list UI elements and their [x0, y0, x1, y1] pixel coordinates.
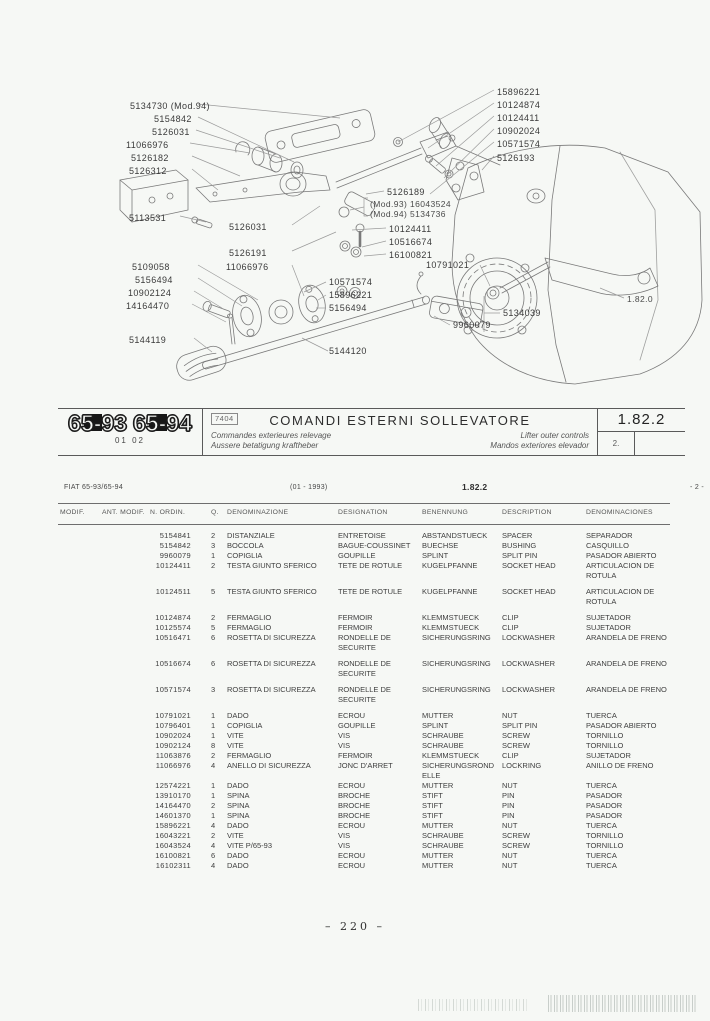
part-label: 15896221 — [329, 290, 372, 300]
cell-designation: ECROU — [338, 711, 422, 721]
cell-ant-modif — [102, 781, 150, 791]
cell-quantity: 1 — [205, 791, 227, 801]
cell-part-number: 10124411 — [150, 561, 205, 581]
cell-quantity: 2 — [205, 613, 227, 623]
cell-denominazione: VITE — [227, 731, 338, 741]
part-label: (Mod.94) 5134736 — [370, 209, 446, 219]
cell-quantity: 6 — [205, 659, 227, 679]
part-label: 16100821 — [389, 250, 432, 260]
sheet-number: 2. — [598, 432, 635, 455]
cell-denominaciones: PASADOR ABIERTO — [586, 551, 668, 561]
cell-benennung: KUGELPFANNE — [422, 561, 502, 581]
cell-part-number: 10125574 — [150, 623, 205, 633]
page-number: – 220 – — [0, 920, 710, 933]
cell-benennung: SCHRAUBE — [422, 831, 502, 841]
cell-ant-modif — [102, 711, 150, 721]
cell-quantity: 4 — [205, 761, 227, 781]
cell-quantity: 4 — [205, 861, 227, 871]
col-header-ant-modif: ANT. MODIF. — [102, 509, 150, 516]
part-label: 10124874 — [497, 100, 540, 110]
cell-designation: RONDELLE DE SECURITE — [338, 685, 422, 705]
cell-benennung: STIFT — [422, 791, 502, 801]
cell-ant-modif — [102, 851, 150, 861]
cell-designation: RONDELLE DE SECURITE — [338, 633, 422, 653]
cell-denominazione: DISTANZIALE — [227, 531, 338, 541]
cell-part-number: 10796401 — [150, 721, 205, 731]
date-range: (01 - 1993) — [290, 484, 328, 491]
cell-quantity: 2 — [205, 561, 227, 581]
col-header-designation: DESIGNATION — [338, 509, 422, 516]
cell-denominazione: VITE — [227, 741, 338, 751]
cell-part-number: 10124874 — [150, 613, 205, 623]
part-label: 5113531 — [129, 213, 166, 223]
section-code-repeat: 1.82.2 — [462, 482, 487, 492]
model-line: FIAT 65-93/65-94 — [64, 484, 123, 491]
part-label: 5109058 — [132, 262, 170, 272]
cell-description: LOCKWASHER — [502, 633, 586, 653]
cell-denominaciones: TUERCA — [586, 851, 668, 861]
cell-description: PIN — [502, 801, 586, 811]
part-label: 5126189 — [387, 187, 425, 197]
cell-denominaciones: PASADOR ABIERTO — [586, 721, 668, 731]
cell-modif — [60, 587, 102, 607]
cell-benennung: SCHRAUBE — [422, 731, 502, 741]
cell-quantity: 2 — [205, 831, 227, 841]
cell-designation: JONC D'ARRET — [338, 761, 422, 781]
cell-denominaciones: TORNILLO — [586, 841, 668, 851]
cell-description: SCREW — [502, 831, 586, 841]
cell-modif — [60, 633, 102, 653]
title-cell: 7404 COMANDI ESTERNI SOLLEVATORE Command… — [202, 409, 597, 455]
cell-part-number: 16043221 — [150, 831, 205, 841]
cell-description: SOCKET HEAD — [502, 561, 586, 581]
part-label: 10124411 — [389, 224, 432, 234]
cell-ant-modif — [102, 623, 150, 633]
cell-designation: ENTRETOISE — [338, 531, 422, 541]
cell-benennung: SICHERUNGSRING — [422, 633, 502, 653]
cell-designation: VIS — [338, 841, 422, 851]
table-row: 12574221 1 DADO ECROU MUTTER NUT TUERCA — [60, 781, 672, 791]
cell-part-number: 16102311 — [150, 861, 205, 871]
cell-modif — [60, 821, 102, 831]
cell-part-number: 16100821 — [150, 851, 205, 861]
cell-benennung: SICHERUNGSRING — [422, 685, 502, 705]
cell-denominaciones: TUERCA — [586, 781, 668, 791]
divider — [58, 503, 670, 504]
cell-quantity: 2 — [205, 751, 227, 761]
cell-description: BUSHING — [502, 541, 586, 551]
table-row: 10571574 3 ROSETTA DI SICUREZZA RONDELLE… — [60, 685, 672, 705]
page-ref: - 2 - — [690, 484, 704, 491]
cell-denominaciones: SUJETADOR — [586, 751, 668, 761]
table-row: 10791021 1 DADO ECROU MUTTER NUT TUERCA — [60, 711, 672, 721]
cell-description: CLIP — [502, 613, 586, 623]
cell-description: SOCKET HEAD — [502, 587, 586, 607]
cell-ant-modif — [102, 811, 150, 821]
code-box: 7404 — [211, 413, 238, 425]
cell-part-number: 10791021 — [150, 711, 205, 721]
cell-benennung: STIFT — [422, 801, 502, 811]
cell-denominaciones: TUERCA — [586, 861, 668, 871]
cell-benennung: SPLINT — [422, 551, 502, 561]
cell-ant-modif — [102, 841, 150, 851]
cell-denominazione: VITE — [227, 831, 338, 841]
part-label: 10571574 — [329, 277, 372, 287]
cell-denominaciones: ARTICULACION DE ROTULA — [586, 561, 668, 581]
cell-part-number: 5154841 — [150, 531, 205, 541]
cell-description: SPLIT PIN — [502, 721, 586, 731]
cell-part-number: 11066976 — [150, 761, 205, 781]
section-code: 1.82.2 — [598, 409, 685, 432]
table-row: 11066976 4 ANELLO DI SICUREZZA JONC D'AR… — [60, 761, 672, 781]
cell-modif — [60, 551, 102, 561]
cell-modif — [60, 561, 102, 581]
cell-denominazione: COPIGLIA — [227, 551, 338, 561]
table-row: 10796401 1 COPIGLIA GOUPILLE SPLINT SPLI… — [60, 721, 672, 731]
cell-designation: GOUPILLE — [338, 551, 422, 561]
cell-ant-modif — [102, 541, 150, 551]
cell-ant-modif — [102, 721, 150, 731]
col-header-denominazione: DENOMINAZIONE — [227, 509, 338, 516]
cell-designation: ECROU — [338, 851, 422, 861]
part-label: 5156494 — [135, 275, 173, 285]
cell-modif — [60, 659, 102, 679]
part-label: 10571574 — [497, 139, 540, 149]
cell-quantity: 6 — [205, 633, 227, 653]
cell-benennung: SCHRAUBE — [422, 841, 502, 851]
cell-part-number: 10124511 — [150, 587, 205, 607]
cell-designation: TETE DE ROTULE — [338, 587, 422, 607]
cell-quantity: 1 — [205, 781, 227, 791]
cell-denominazione: SPINA — [227, 801, 338, 811]
table-row: 11063876 2 FERMAGLIO FERMOIR KLEMMSTUECK… — [60, 751, 672, 761]
col-header-n-ordin: N. ORDIN. — [150, 509, 205, 516]
cell-modif — [60, 541, 102, 551]
table-header-row: MODIF. ANT. MODIF. N. ORDIN. Q. DENOMINA… — [60, 509, 668, 516]
cell-modif — [60, 721, 102, 731]
table-row: 10125574 5 FERMAGLIO FERMOIR KLEMMSTUECK… — [60, 623, 672, 633]
cell-description: NUT — [502, 861, 586, 871]
cell-description: SPLIT PIN — [502, 551, 586, 561]
cell-ant-modif — [102, 791, 150, 801]
cell-part-number: 10516471 — [150, 633, 205, 653]
part-label: 11066976 — [126, 140, 169, 150]
cell-benennung: ABSTANDSTUECK — [422, 531, 502, 541]
page-title: COMANDI ESTERNI SOLLEVATORE — [211, 413, 589, 428]
cell-denominaciones: TUERCA — [586, 821, 668, 831]
part-label: 5126031 — [152, 127, 190, 137]
cell-benennung: SICHERUNGSRONDELLE — [422, 761, 502, 781]
cell-denominaciones: TUERCA — [586, 711, 668, 721]
cell-denominaciones: ANILLO DE FRENO — [586, 761, 668, 781]
cell-benennung: KLEMMSTUECK — [422, 613, 502, 623]
cell-denominaciones: ARANDELA DE FRENO — [586, 633, 668, 653]
cell-part-number: 11063876 — [150, 751, 205, 761]
exploded-diagram: 5134730 (Mod.94) 5154842 5126031 1106697… — [0, 0, 710, 405]
part-label: 9960079 — [453, 320, 491, 330]
cell-designation: VIS — [338, 731, 422, 741]
cell-denominaciones: PASADOR — [586, 801, 668, 811]
cell-denominaciones: ARANDELA DE FRENO — [586, 659, 668, 679]
cell-denominazione: SPINA — [227, 811, 338, 821]
cell-description: CLIP — [502, 623, 586, 633]
part-label: 5144120 — [329, 346, 367, 356]
col-header-denominaciones: DENOMINACIONES — [586, 509, 668, 516]
cell-designation: BROCHE — [338, 811, 422, 821]
title-band: 65-93 65-94 01 02 7404 COMANDI ESTERNI S… — [58, 408, 685, 456]
table-row: 16043221 2 VITE VIS SCHRAUBE SCREW TORNI… — [60, 831, 672, 841]
cell-benennung: STIFT — [422, 811, 502, 821]
cell-denominaciones: TORNILLO — [586, 731, 668, 741]
exploded-diagram-art — [0, 0, 710, 405]
part-label: 10791021 — [426, 260, 469, 270]
cell-designation: ECROU — [338, 821, 422, 831]
catalog-page: 5134730 (Mod.94) 5154842 5126031 1106697… — [0, 0, 710, 1021]
cell-quantity: 8 — [205, 741, 227, 751]
cell-description: SCREW — [502, 841, 586, 851]
cell-benennung: MUTTER — [422, 861, 502, 871]
cell-ant-modif — [102, 551, 150, 561]
scan-artifact — [548, 995, 698, 1012]
table-row: 16102311 4 DADO ECROU MUTTER NUT TUERCA — [60, 861, 672, 871]
cell-modif — [60, 685, 102, 705]
part-label: 10516674 — [389, 237, 432, 247]
cell-modif — [60, 791, 102, 801]
cell-description: SCREW — [502, 731, 586, 741]
cell-denominazione: COPIGLIA — [227, 721, 338, 731]
parts-table-body: 5154841 2 DISTANZIALE ENTRETOISE ABSTAND… — [60, 531, 672, 871]
cell-description: LOCKRING — [502, 761, 586, 781]
cell-part-number: 14601370 — [150, 811, 205, 821]
table-row: 16100821 6 DADO ECROU MUTTER NUT TUERCA — [60, 851, 672, 861]
cell-denominazione: DADO — [227, 821, 338, 831]
cell-description: LOCKWASHER — [502, 659, 586, 679]
cell-modif — [60, 711, 102, 721]
cell-denominazione: FERMAGLIO — [227, 623, 338, 633]
table-row: 10124511 5 TESTA GIUNTO SFERICO TETE DE … — [60, 587, 672, 607]
cell-quantity: 2 — [205, 801, 227, 811]
part-label: 5126312 — [129, 166, 167, 176]
cell-ant-modif — [102, 587, 150, 607]
cell-part-number: 13910170 — [150, 791, 205, 801]
cell-denominaciones: PASADOR — [586, 791, 668, 801]
cell-benennung: BUECHSE — [422, 541, 502, 551]
cell-ant-modif — [102, 861, 150, 871]
cell-ant-modif — [102, 731, 150, 741]
cell-ant-modif — [102, 613, 150, 623]
cell-designation: TETE DE ROTULE — [338, 561, 422, 581]
divider — [58, 524, 670, 525]
cell-designation: FERMOIR — [338, 613, 422, 623]
cell-quantity: 4 — [205, 821, 227, 831]
subtitle-en-es: Lifter outer controls Mandos exteriores … — [490, 431, 589, 450]
cell-modif — [60, 861, 102, 871]
part-label: 5126193 — [497, 153, 535, 163]
model-badge-65-93: 65-93 — [68, 411, 127, 436]
cell-quantity: 1 — [205, 721, 227, 731]
cell-benennung: SICHERUNGSRING — [422, 659, 502, 679]
cell-benennung: MUTTER — [422, 821, 502, 831]
cell-denominazione: FERMAGLIO — [227, 613, 338, 623]
cell-ant-modif — [102, 561, 150, 581]
cell-quantity: 3 — [205, 685, 227, 705]
cell-modif — [60, 801, 102, 811]
cell-modif — [60, 731, 102, 741]
cell-part-number: 9960079 — [150, 551, 205, 561]
cell-designation: BROCHE — [338, 791, 422, 801]
cell-modif — [60, 811, 102, 821]
cell-description: NUT — [502, 851, 586, 861]
cell-ant-modif — [102, 741, 150, 751]
cell-denominazione: SPINA — [227, 791, 338, 801]
cell-description: LOCKWASHER — [502, 685, 586, 705]
cell-designation: ECROU — [338, 781, 422, 791]
cell-quantity: 2 — [205, 531, 227, 541]
part-label: 5154842 — [154, 114, 192, 124]
cell-denominaciones: CASQUILLO — [586, 541, 668, 551]
cell-description: NUT — [502, 821, 586, 831]
part-label: 10124411 — [497, 113, 540, 123]
cell-part-number: 16043524 — [150, 841, 205, 851]
cell-quantity: 3 — [205, 541, 227, 551]
cell-benennung: SPLINT — [422, 721, 502, 731]
section-code-cell: 1.82.2 2. — [597, 409, 685, 455]
cell-denominaciones: SEPARADOR — [586, 531, 668, 541]
cell-part-number: 10571574 — [150, 685, 205, 705]
cell-quantity: 1 — [205, 551, 227, 561]
cell-modif — [60, 761, 102, 781]
sheet-empty-cell — [635, 432, 685, 455]
table-row: 10124411 2 TESTA GIUNTO SFERICO TETE DE … — [60, 561, 672, 581]
cell-ant-modif — [102, 531, 150, 541]
cell-description: SCREW — [502, 741, 586, 751]
cell-denominaciones: PASADOR — [586, 811, 668, 821]
cell-ant-modif — [102, 659, 150, 679]
cell-modif — [60, 781, 102, 791]
cell-designation: BAGUE-COUSSINET — [338, 541, 422, 551]
cell-benennung: MUTTER — [422, 781, 502, 791]
table-row: 10124874 2 FERMAGLIO FERMOIR KLEMMSTUECK… — [60, 613, 672, 623]
cell-denominazione: ANELLO DI SICUREZZA — [227, 761, 338, 781]
cell-modif — [60, 531, 102, 541]
table-row: 10516471 6 ROSETTA DI SICUREZZA RONDELLE… — [60, 633, 672, 653]
cell-denominaciones: SUJETADOR — [586, 613, 668, 623]
part-label: 14164470 — [126, 301, 169, 311]
cell-benennung: SCHRAUBE — [422, 741, 502, 751]
cell-modif — [60, 851, 102, 861]
cell-designation: VIS — [338, 831, 422, 841]
cell-modif — [60, 741, 102, 751]
cell-benennung: KLEMMSTUECK — [422, 623, 502, 633]
cell-designation: GOUPILLE — [338, 721, 422, 731]
col-header-modif: MODIF. — [60, 509, 102, 516]
cell-denominazione: BOCCOLA — [227, 541, 338, 551]
cell-modif — [60, 841, 102, 851]
cell-benennung: KLEMMSTUECK — [422, 751, 502, 761]
part-label: 5134730 (Mod.94) — [130, 101, 210, 111]
cell-modif — [60, 751, 102, 761]
cell-denominaciones: ARTICULACION DE ROTULA — [586, 587, 668, 607]
model-badges-cell: 65-93 65-94 01 02 — [58, 409, 202, 455]
cell-designation: RONDELLE DE SECURITE — [338, 659, 422, 679]
cell-denominazione: DADO — [227, 851, 338, 861]
table-row: 5154842 3 BOCCOLA BAGUE-COUSSINET BUECHS… — [60, 541, 672, 551]
cell-denominaciones: TORNILLO — [586, 741, 668, 751]
cell-quantity: 6 — [205, 851, 227, 861]
part-label: 15896221 — [497, 87, 540, 97]
cell-description: CLIP — [502, 751, 586, 761]
cell-part-number: 15896221 — [150, 821, 205, 831]
cell-denominazione: TESTA GIUNTO SFERICO — [227, 561, 338, 581]
col-header-benennung: BENENNUNG — [422, 509, 502, 516]
part-label: 5144119 — [129, 335, 166, 345]
cell-denominazione: DADO — [227, 711, 338, 721]
subtitle-fr-de: Commandes exterieures relevage Aussere b… — [211, 431, 331, 450]
cell-denominazione: FERMAGLIO — [227, 751, 338, 761]
cell-description: NUT — [502, 781, 586, 791]
col-header-q: Q. — [205, 509, 227, 516]
cell-benennung: MUTTER — [422, 711, 502, 721]
cell-part-number: 12574221 — [150, 781, 205, 791]
cell-benennung: MUTTER — [422, 851, 502, 861]
part-label: 10902024 — [497, 126, 540, 136]
cell-description: NUT — [502, 711, 586, 721]
col-header-description: DESCRIPTION — [502, 509, 586, 516]
part-label: 5156494 — [329, 303, 367, 313]
part-label: 5126182 — [131, 153, 169, 163]
cell-denominazione: ROSETTA DI SICUREZZA — [227, 659, 338, 679]
cell-denominaciones: ARANDELA DE FRENO — [586, 685, 668, 705]
cell-description: SPACER — [502, 531, 586, 541]
cell-denominazione: DADO — [227, 781, 338, 791]
part-label: 10902124 — [128, 288, 171, 298]
table-row: 10902124 8 VITE VIS SCHRAUBE SCREW TORNI… — [60, 741, 672, 751]
cell-ant-modif — [102, 801, 150, 811]
cell-denominaciones: TORNILLO — [586, 831, 668, 841]
cell-ant-modif — [102, 751, 150, 761]
table-row: 5154841 2 DISTANZIALE ENTRETOISE ABSTAND… — [60, 531, 672, 541]
cell-designation: FERMOIR — [338, 751, 422, 761]
model-badge-65-94: 65-94 — [133, 411, 192, 436]
cell-denominazione: ROSETTA DI SICUREZZA — [227, 685, 338, 705]
table-row: 14601370 1 SPINA BROCHE STIFT PIN PASADO… — [60, 811, 672, 821]
cell-designation: BROCHE — [338, 801, 422, 811]
table-row: 14164470 2 SPINA BROCHE STIFT PIN PASADO… — [60, 801, 672, 811]
cell-quantity: 5 — [205, 623, 227, 633]
cell-ant-modif — [102, 831, 150, 841]
cell-description: PIN — [502, 791, 586, 801]
cell-part-number: 10902024 — [150, 731, 205, 741]
cell-quantity: 1 — [205, 711, 227, 721]
cell-description: PIN — [502, 811, 586, 821]
cell-designation: VIS — [338, 741, 422, 751]
part-label: 5126191 — [229, 248, 267, 258]
cell-designation: ECROU — [338, 861, 422, 871]
cell-quantity: 1 — [205, 811, 227, 821]
table-row: 10516674 6 ROSETTA DI SICUREZZA RONDELLE… — [60, 659, 672, 679]
cell-modif — [60, 613, 102, 623]
cell-designation: FERMOIR — [338, 623, 422, 633]
table-row: 13910170 1 SPINA BROCHE STIFT PIN PASADO… — [60, 791, 672, 801]
section-ref-label: 1.82.0 — [627, 294, 653, 304]
part-label: 5126031 — [229, 222, 267, 232]
cell-quantity: 4 — [205, 841, 227, 851]
cell-modif — [60, 623, 102, 633]
cell-ant-modif — [102, 761, 150, 781]
cell-ant-modif — [102, 821, 150, 831]
cell-part-number: 5154842 — [150, 541, 205, 551]
cell-part-number: 14164470 — [150, 801, 205, 811]
